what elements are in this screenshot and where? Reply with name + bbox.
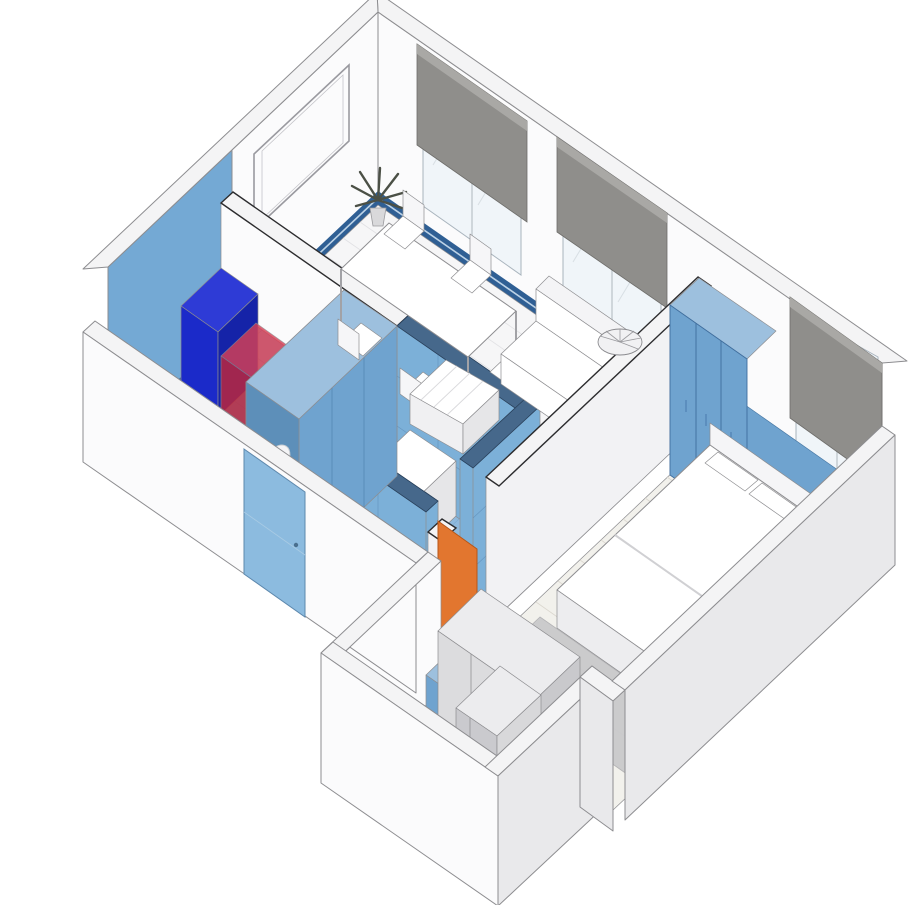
floor-plan-canvas [0,0,909,905]
floor-plan-stage [0,0,909,905]
entry-door-handle [294,543,298,547]
round-fan-chair [598,329,642,355]
